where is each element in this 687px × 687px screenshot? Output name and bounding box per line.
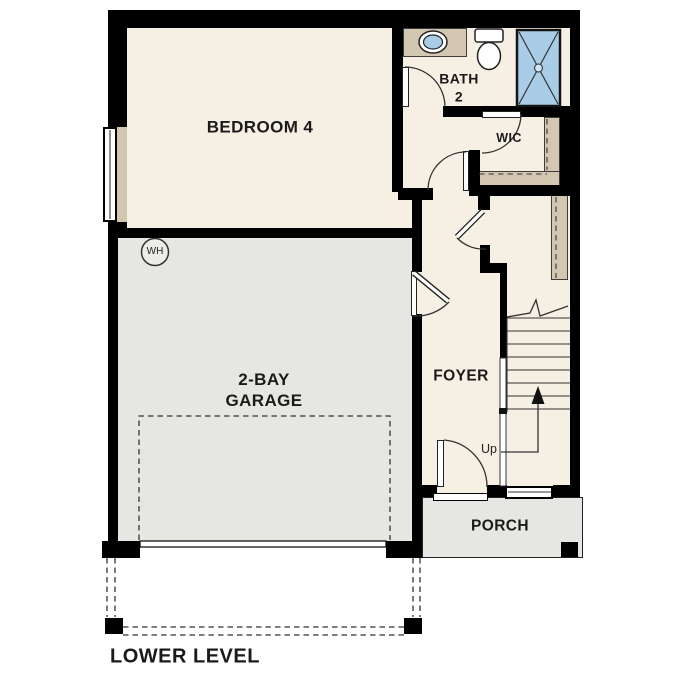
wall <box>487 485 507 497</box>
porch-post <box>561 542 578 557</box>
wall <box>553 485 580 497</box>
wall <box>560 106 570 196</box>
room-label-wic: WIC <box>496 131 522 147</box>
room-label-bath: BATH 2 <box>439 71 478 106</box>
room-label-garage: 2-BAY GARAGE <box>225 369 302 412</box>
wall <box>108 10 580 28</box>
entry-door-leaf <box>437 440 444 487</box>
wall <box>108 28 127 127</box>
wall <box>102 541 140 558</box>
wall <box>108 228 412 238</box>
entry-door-threshold <box>433 493 488 501</box>
window-sill-strip <box>116 118 127 228</box>
wall <box>480 245 490 263</box>
water-heater-label: WH <box>147 246 164 259</box>
plan-title: LOWER LEVEL <box>110 645 260 670</box>
room-label-garage-line1: 2-BAY <box>225 369 302 390</box>
garage-door <box>140 541 386 547</box>
floor-plan: BEDROOM 4 BATH 2 WIC FOYER 2-BAY GARAGE … <box>0 0 687 687</box>
bath-door-leaf <box>402 67 409 107</box>
room-label-garage-line2: GARAGE <box>225 390 302 411</box>
wall <box>108 238 118 541</box>
room-label-bath-line2: 2 <box>439 88 478 106</box>
stairs-up-label: Up <box>481 442 497 458</box>
wall <box>478 196 490 210</box>
wic-door-leaf <box>482 111 521 118</box>
bedroom-door-leaf <box>463 151 469 191</box>
wic-shelf-bottom <box>477 171 560 186</box>
window-entry <box>505 486 553 499</box>
room-label-porch: PORCH <box>471 516 529 535</box>
stair-closet-shelf <box>551 193 568 280</box>
wall <box>500 273 507 358</box>
wall <box>570 28 580 497</box>
bath-vanity <box>403 28 467 57</box>
wall <box>412 192 422 272</box>
wall <box>392 28 403 192</box>
wall <box>412 314 422 558</box>
wall <box>469 185 570 196</box>
room-label-foyer: FOYER <box>433 366 488 385</box>
room-label-bedroom: BEDROOM 4 <box>207 116 314 137</box>
wall <box>480 263 507 273</box>
room-label-bath-line1: BATH <box>439 71 478 89</box>
garage-door-jamb <box>411 271 417 316</box>
driveway-outline <box>105 558 422 635</box>
window-bedroom <box>103 127 117 222</box>
